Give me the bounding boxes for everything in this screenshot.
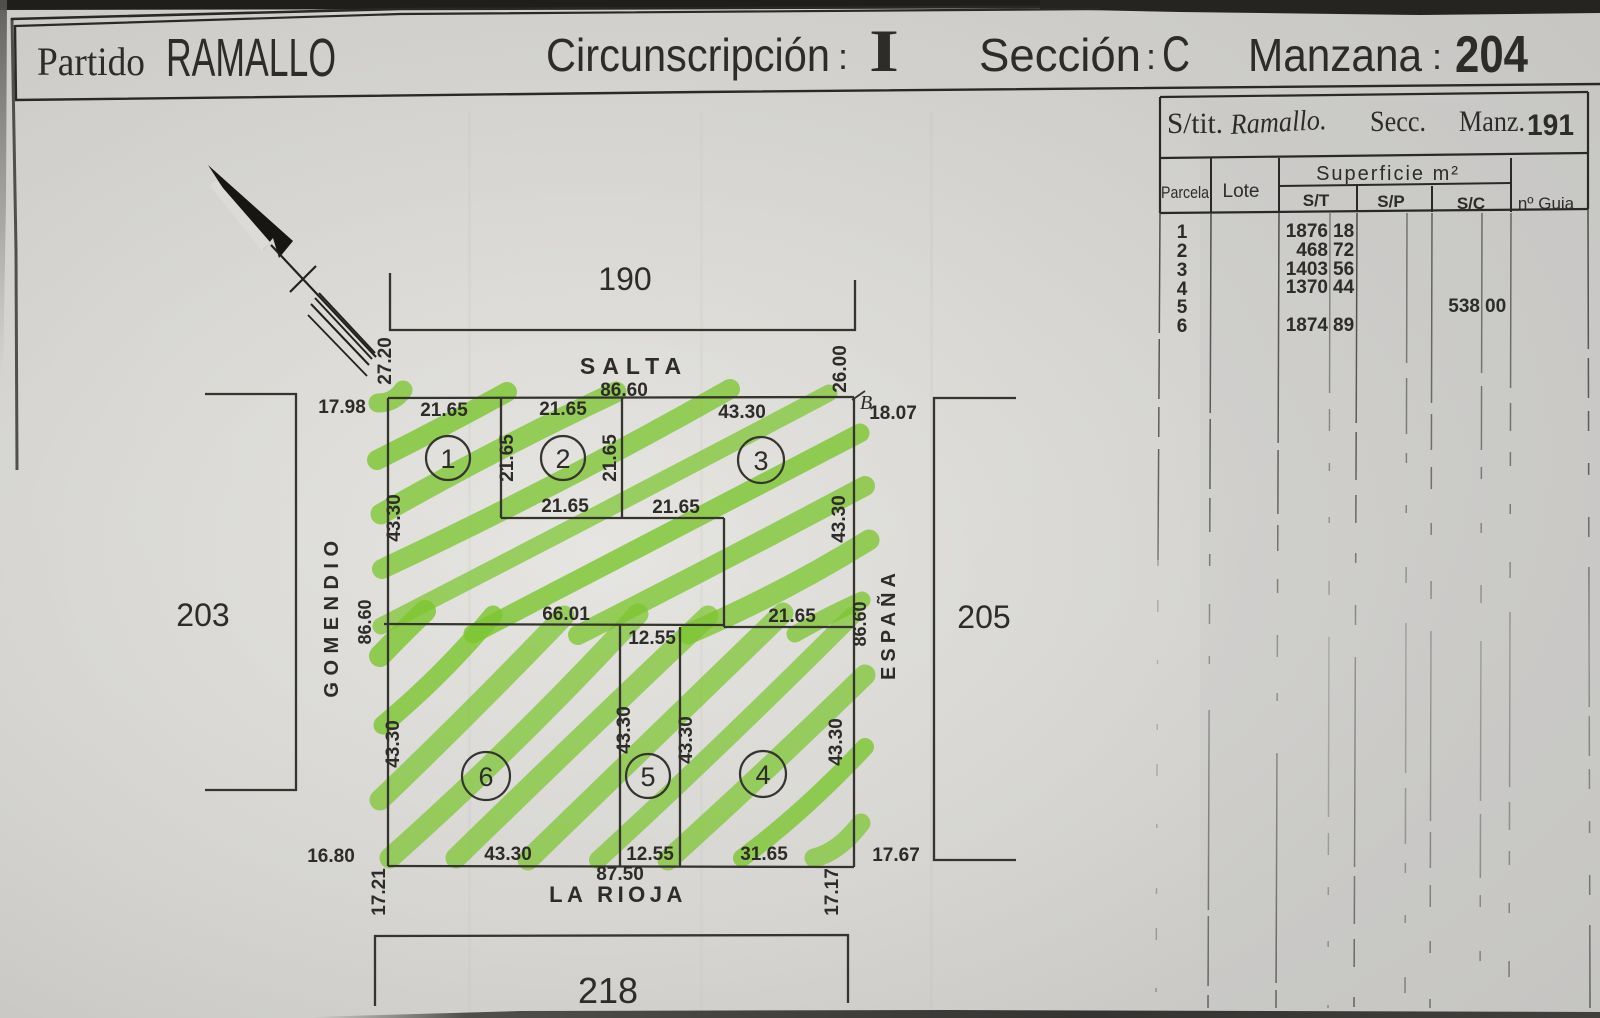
svg-text:Ramallo.: Ramallo. [1229, 104, 1327, 141]
svg-text:6: 6 [478, 762, 493, 792]
svg-text:1874: 1874 [1286, 315, 1329, 336]
svg-text:17.21: 17.21 [369, 868, 390, 916]
svg-text:17.17: 17.17 [822, 868, 843, 916]
svg-text:2: 2 [1177, 241, 1188, 262]
svg-text:18.07: 18.07 [869, 403, 917, 424]
svg-text:43.30: 43.30 [383, 720, 404, 768]
svg-text::: : [1146, 36, 1156, 77]
svg-text:86.60: 86.60 [355, 599, 375, 644]
svg-text:Superficie m²: Superficie m² [1316, 163, 1460, 185]
svg-text:43.30: 43.30 [826, 718, 847, 766]
svg-text:3: 3 [753, 446, 768, 476]
svg-text:Lote: Lote [1223, 181, 1260, 202]
svg-text:66.01: 66.01 [542, 604, 590, 625]
svg-text:Sección: Sección [979, 29, 1141, 81]
svg-text:21.65: 21.65 [541, 496, 589, 517]
svg-text:Partido: Partido [37, 39, 145, 84]
svg-text:43.30: 43.30 [718, 402, 766, 423]
svg-text:00: 00 [1485, 296, 1506, 317]
svg-text:538: 538 [1448, 296, 1480, 317]
svg-text:43.30: 43.30 [614, 706, 635, 754]
svg-text:Circunscripción: Circunscripción [546, 29, 830, 81]
svg-text:1: 1 [1177, 222, 1188, 243]
svg-text:43.30: 43.30 [676, 716, 697, 764]
svg-text:43.30: 43.30 [384, 494, 405, 542]
svg-text:86.60: 86.60 [850, 601, 870, 646]
svg-text:RAMALLO: RAMALLO [166, 28, 336, 88]
svg-text:GOMENDIO: GOMENDIO [321, 534, 343, 697]
svg-text:1: 1 [440, 444, 455, 474]
svg-text:72: 72 [1333, 240, 1354, 261]
svg-text:21.65: 21.65 [539, 399, 587, 420]
svg-text:4: 4 [755, 760, 770, 790]
svg-text:1876: 1876 [1286, 221, 1328, 242]
svg-text:87.50: 87.50 [596, 864, 644, 885]
svg-text:Manzana: Manzana [1248, 29, 1422, 81]
svg-text:44: 44 [1333, 277, 1355, 298]
svg-text:89: 89 [1333, 315, 1354, 336]
svg-text:17.67: 17.67 [872, 845, 920, 866]
svg-text:5: 5 [1177, 297, 1188, 318]
svg-text:ESPAÑA: ESPAÑA [877, 568, 900, 680]
svg-text:6: 6 [1177, 316, 1188, 337]
svg-text:16.80: 16.80 [307, 846, 355, 867]
svg-text:86.60: 86.60 [600, 380, 648, 401]
svg-text:S/tit.: S/tit. [1167, 107, 1223, 140]
svg-text:5: 5 [640, 762, 655, 792]
svg-text:I: I [869, 18, 899, 84]
svg-text:43.30: 43.30 [829, 495, 850, 543]
svg-text:468: 468 [1296, 240, 1328, 261]
svg-text:21.65: 21.65 [600, 434, 621, 482]
svg-text:12.55: 12.55 [626, 844, 674, 865]
svg-text:1370: 1370 [1286, 277, 1328, 298]
svg-text:21.65: 21.65 [652, 497, 700, 518]
svg-text:31.65: 31.65 [740, 844, 788, 865]
svg-text:191: 191 [1527, 109, 1574, 142]
svg-text:204: 204 [1455, 26, 1528, 84]
svg-text:203: 203 [176, 597, 229, 633]
svg-text:12.55: 12.55 [628, 628, 676, 649]
svg-text:2: 2 [555, 444, 570, 474]
svg-text:26.00: 26.00 [830, 345, 851, 393]
svg-text:nº Guia: nº Guia [1518, 194, 1575, 213]
svg-text:218: 218 [578, 970, 638, 1011]
svg-text:C: C [1162, 26, 1190, 82]
svg-text:190: 190 [598, 261, 651, 297]
svg-text:21.65: 21.65 [768, 606, 816, 627]
svg-text:43.30: 43.30 [484, 844, 532, 865]
svg-text:Manz.: Manz. [1459, 105, 1525, 138]
svg-text:Secc.: Secc. [1370, 105, 1426, 138]
svg-text:Parcela: Parcela [1161, 183, 1209, 202]
svg-text:S/T: S/T [1303, 191, 1330, 210]
svg-text:21.65: 21.65 [497, 434, 518, 482]
svg-text:17.98: 17.98 [318, 397, 366, 418]
svg-text:3: 3 [1177, 260, 1188, 281]
svg-text:S/P: S/P [1377, 192, 1404, 211]
svg-text::: : [838, 36, 848, 77]
svg-text:18: 18 [1333, 221, 1354, 242]
svg-text:21.65: 21.65 [420, 400, 468, 421]
svg-text:S/C: S/C [1457, 194, 1485, 213]
svg-text::: : [1432, 36, 1442, 77]
svg-text:LA RIOJA: LA RIOJA [549, 882, 687, 907]
svg-text:27.20: 27.20 [375, 337, 396, 385]
svg-text:205: 205 [957, 599, 1010, 635]
svg-text:SALTA: SALTA [580, 353, 688, 379]
